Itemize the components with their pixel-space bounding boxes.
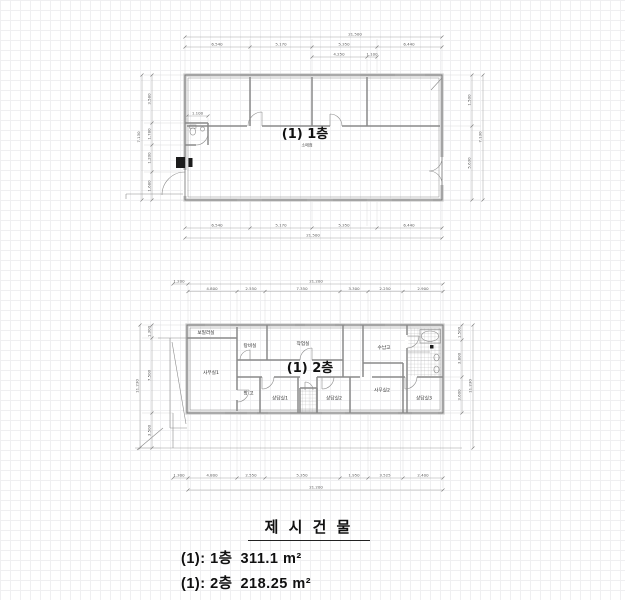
dim-label: 3.525 (379, 473, 391, 478)
room-label: 수납고 (378, 344, 392, 351)
dim-label: 1.200 (173, 279, 185, 284)
dim-label: 3.580 (147, 93, 152, 105)
dim-label: 5.350 (296, 473, 308, 478)
dim-label: 2.550 (245, 473, 257, 478)
entry-column-block (176, 157, 185, 168)
room-label: 창 고 (243, 390, 254, 397)
floor1-subtitle: 소매점 (301, 142, 312, 148)
dim-label: 1.780 (147, 128, 152, 140)
dim-label: 2.550 (245, 286, 257, 291)
legend-floor2-area: 218.25 m² (240, 576, 311, 592)
door-arc (322, 377, 334, 389)
entrance-door-arc (162, 172, 185, 195)
dim-label: 11.230 (135, 379, 140, 393)
dim-label: 5.630 (467, 157, 472, 169)
room-label: 보일러실 (197, 329, 214, 336)
floor2-plan: 1.200 21.200 4.800 2.550 7.350 3.300 2.2… (135, 279, 475, 492)
dim-label: 7.130 (478, 131, 483, 143)
dim-label: 3.600 (457, 389, 462, 401)
dim-label: 7.130 (136, 131, 141, 143)
floor1-plan: 21.500 6.540 5.170 5.350 6.440 4.250 1.1… (126, 32, 485, 240)
legend-line-floor1: (1): 1층311.1 m² (181, 547, 302, 568)
dim-label: 1.500 (457, 326, 462, 338)
dim-label: 6.440 (403, 42, 415, 47)
room-label: 작업실 (297, 340, 310, 347)
dim-label: 21.200 (309, 485, 323, 490)
floor2-title: (1) 2층 (287, 360, 333, 376)
legend-title: 제 시 건 물 (248, 516, 370, 541)
room-label: 사무실1 (203, 369, 219, 376)
dim-label: 7.350 (296, 286, 308, 291)
dim-label: 21.200 (309, 279, 323, 284)
floor2-bathroom (407, 329, 441, 377)
door-arc (196, 133, 208, 145)
legend-floor2-label: (1): 2층 (181, 576, 232, 592)
dim-label: 5.350 (338, 223, 350, 228)
dim-label: 6.540 (211, 223, 223, 228)
column-block (430, 345, 434, 349)
floor1-title: (1) 1층 (282, 126, 328, 142)
legend-floor1-area: 311.1 m² (240, 551, 301, 567)
dim-label: 3.500 (147, 424, 152, 436)
dim-label: 3.300 (348, 286, 360, 291)
dim-label: 1.200 (147, 152, 152, 164)
dim-label: 2.250 (379, 286, 391, 291)
dim-label: 4.250 (333, 52, 345, 57)
door-arc (262, 377, 274, 389)
dim-label: 21.500 (348, 32, 362, 37)
legend-line-floor2: (1): 2층218.25 m² (181, 572, 311, 593)
dim-label: 2.900 (417, 286, 429, 291)
room-label: 상담실1 (272, 395, 288, 402)
dim-label: 1.500 (467, 94, 472, 106)
dim-label: 5.170 (275, 42, 287, 47)
dim-label: 21.500 (306, 233, 320, 238)
dim-label: 6.540 (211, 42, 223, 47)
floor2-extension-lines (142, 286, 471, 488)
dim-label: 1.100 (192, 110, 204, 115)
dim-label: 3.800 (457, 352, 462, 364)
room-label: 사무실2 (374, 387, 390, 394)
room-label: 탕비실 (244, 342, 257, 349)
room-label: 상담실3 (416, 395, 432, 402)
dim-label: 6.440 (403, 223, 415, 228)
room-label: 상담실2 (326, 395, 342, 402)
floor2-dimension-lines (139, 283, 475, 492)
dim-label: 5.170 (275, 223, 287, 228)
floor2-stair-shaft (300, 382, 317, 413)
dim-label: 1.100 (366, 52, 378, 57)
dim-label: 11.230 (468, 379, 473, 393)
floor1-fixtures (126, 112, 442, 199)
door-arc (300, 348, 312, 360)
floor2-exterior-stair (137, 338, 187, 450)
blueprint-page: 21.500 6.540 5.170 5.350 6.440 4.250 1.1… (0, 0, 625, 600)
dim-label: 5.350 (338, 42, 350, 47)
dim-label: 1.680 (147, 180, 152, 192)
legend-floor1-label: (1): 1층 (181, 551, 232, 567)
entry-column-block (189, 158, 193, 167)
dim-label: 2.400 (417, 473, 429, 478)
dim-label: 4.800 (206, 473, 218, 478)
dim-label: 7.500 (147, 369, 152, 381)
dim-label: 1.300 (147, 325, 152, 337)
floor2-dimension-texts: 1.200 21.200 4.800 2.550 7.350 3.300 2.2… (135, 279, 473, 490)
door-arc (330, 114, 342, 126)
dim-label: 1.300 (173, 473, 185, 478)
dim-label: 1.950 (348, 473, 360, 478)
blueprint-canvas: 21.500 6.540 5.170 5.350 6.440 4.250 1.1… (0, 0, 625, 600)
dim-label: 4.800 (206, 286, 218, 291)
sink-fixture (200, 127, 204, 131)
door-arc (240, 350, 250, 360)
